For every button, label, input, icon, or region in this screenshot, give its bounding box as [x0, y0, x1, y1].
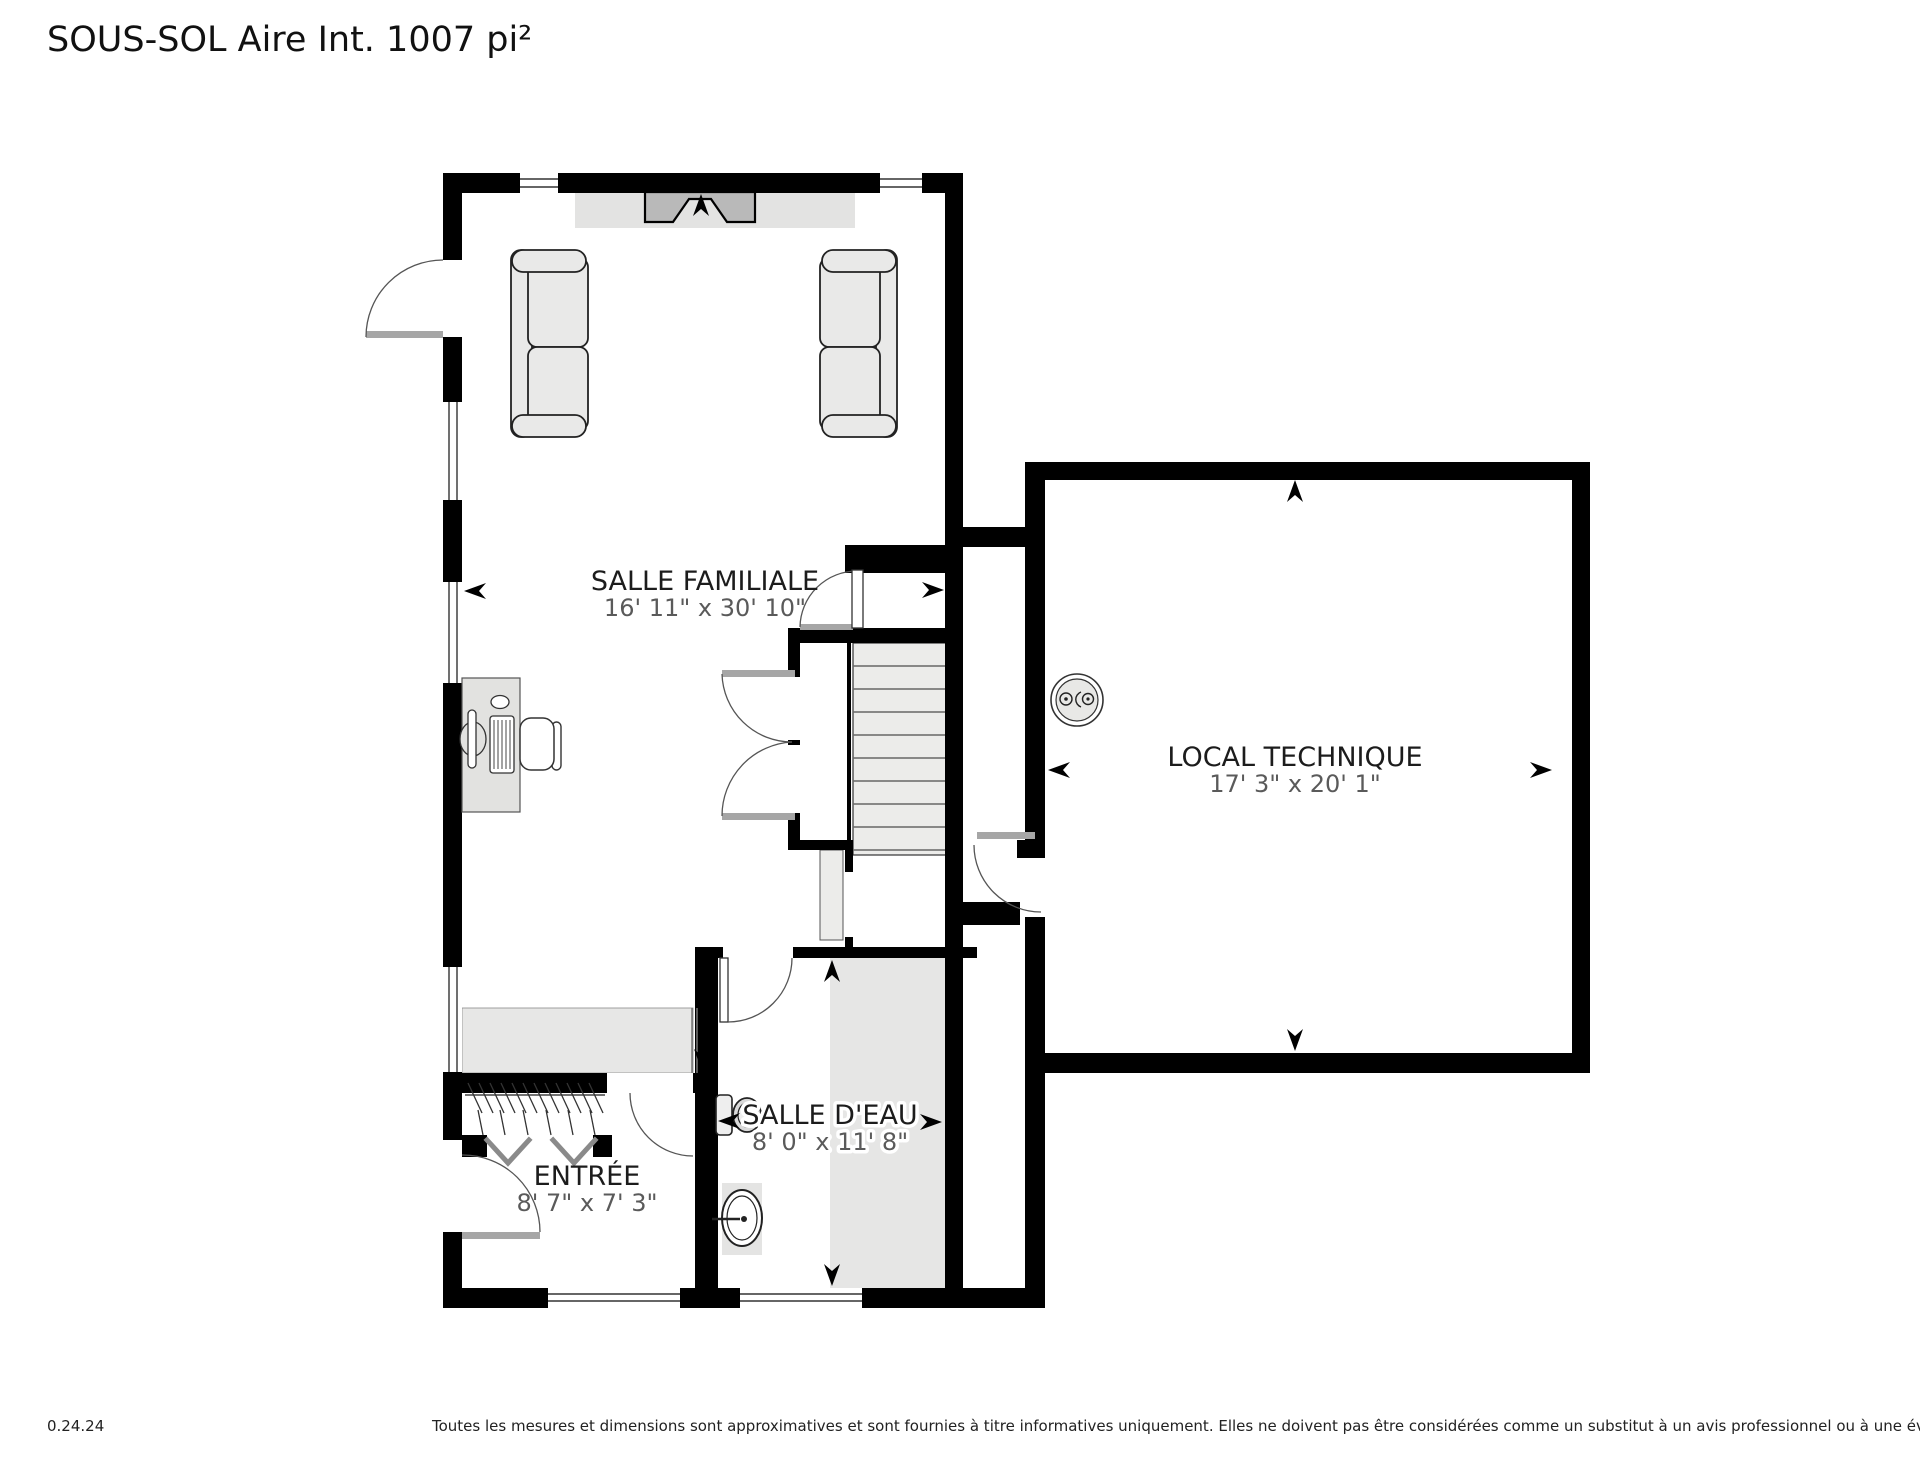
wall-lt-top [1030, 462, 1590, 480]
wall-lt-left-nub [1017, 840, 1045, 858]
wall-lt-left-lower [1025, 917, 1045, 1308]
window-left-1 [443, 402, 462, 500]
room-dims-salle-familiale: 16' 11" x 30' 10" [604, 594, 806, 622]
door-salle-deau [720, 947, 793, 1022]
mouse-icon [491, 696, 509, 709]
wall-nub-1 [845, 840, 853, 872]
sink-icon [712, 1183, 762, 1255]
desk [460, 678, 520, 812]
monitor-icon [468, 710, 476, 768]
floorplan-page: SOUS-SOL Aire Int. 1007 pi² 0.24.24 Tout… [0, 0, 1920, 1483]
measure-arrows [464, 194, 1552, 1286]
door-exterior [366, 260, 462, 338]
wall-lt-left-upper [1025, 462, 1045, 840]
walls [443, 173, 1590, 1308]
sofa-left [511, 250, 588, 437]
wall-closet-bottom [788, 628, 963, 643]
page-title: SOUS-SOL Aire Int. 1007 pi² [47, 20, 532, 60]
wall-lt-bottom [1030, 1053, 1590, 1073]
footer-disclaimer: Toutes les mesures et dimensions sont ap… [432, 1417, 1920, 1435]
door-double-understair [722, 670, 795, 820]
room-dims-local-technique: 17' 3" x 20' 1" [1209, 770, 1381, 798]
water-heater-icon [1051, 674, 1103, 726]
arrow-lt-left-icon [1048, 762, 1070, 778]
arrow-left-icon [464, 583, 486, 599]
window-left-2 [443, 582, 462, 683]
wall-lt-right [1572, 462, 1590, 1073]
wall-salledeau-left [695, 947, 718, 1288]
footer-version: 0.24.24 [47, 1417, 104, 1435]
arrow-lt-right-icon [1530, 762, 1552, 778]
window-left-3 [443, 967, 462, 1072]
bifold-doors [487, 1140, 595, 1163]
room-label-salle-familiale: SALLE FAMILIALE [591, 566, 819, 597]
door-entree-hall [607, 1073, 693, 1156]
room-label-entree: ENTRÉE [534, 1160, 641, 1192]
window-top-1 [520, 173, 558, 193]
hallway-floor-strip [462, 1008, 693, 1073]
room-labels: SALLE FAMILIALE 16' 11" x 30' 10" LOCAL … [516, 566, 1422, 1217]
room-label-salle-deau: SALLE D'EAU [742, 1100, 917, 1131]
stairs [853, 643, 950, 855]
cased-opening [692, 1008, 697, 1073]
window-bottom-1 [548, 1288, 680, 1308]
sofa-right [820, 250, 897, 437]
room-dims-salle-deau: 8' 0" x 11' 8" [752, 1128, 908, 1156]
arrow-lt-up-icon [1287, 480, 1303, 502]
wall-closet-top [845, 545, 963, 573]
office-chair [520, 718, 561, 770]
wall-connector [963, 527, 1033, 547]
wall-right-column [945, 173, 963, 1308]
wall-vestibule [945, 902, 1020, 925]
wall-understair-bottom [788, 840, 845, 850]
stair-landing [820, 850, 843, 940]
arrow-right-icon [922, 582, 944, 598]
arrow-lt-down-icon [1287, 1029, 1303, 1051]
wall-nub-2 [845, 937, 853, 947]
room-label-local-technique: LOCAL TECHNIQUE [1167, 742, 1422, 773]
room-dims-entree: 8' 7" x 7' 3" [516, 1189, 657, 1217]
window-top-2 [880, 173, 922, 193]
floorplan-svg: SALLE FAMILIALE 16' 11" x 30' 10" LOCAL … [0, 0, 1920, 1483]
keyboard-icon [490, 716, 514, 773]
window-bottom-2 [740, 1288, 862, 1308]
wall-stair-divider [847, 643, 851, 872]
